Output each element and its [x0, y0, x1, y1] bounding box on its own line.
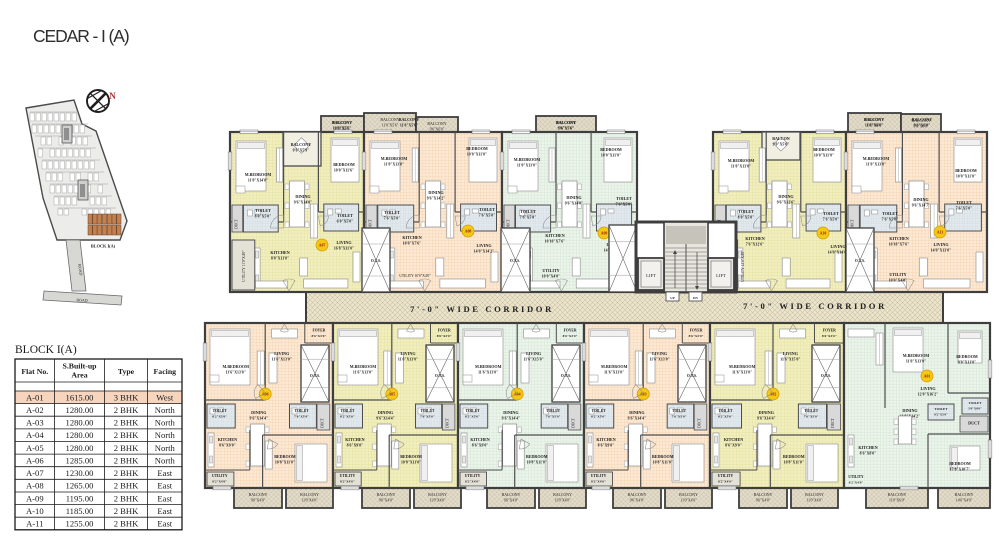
- svg-text:BLOCK I(A): BLOCK I(A): [15, 344, 77, 356]
- svg-text:North: North: [155, 418, 176, 428]
- svg-text:M.BEDROOM: M.BEDROOM: [475, 364, 502, 369]
- svg-text:9'6"X4'0": 9'6"X4'0": [379, 499, 394, 503]
- svg-text:2 BHK: 2 BHK: [114, 455, 139, 465]
- svg-text:O.T.S.: O.T.S.: [310, 374, 320, 378]
- svg-text:BALCONY: BALCONY: [380, 117, 399, 122]
- svg-text:10'8"X11'0": 10'8"X11'0": [784, 460, 804, 464]
- svg-text:M.BEDROOM: M.BEDROOM: [350, 364, 377, 369]
- svg-text:10'0"X11'0": 10'0"X11'0": [814, 153, 834, 157]
- svg-text:6'0"X5'0": 6'0"X5'0": [337, 219, 354, 223]
- svg-text:11'0"X5'6": 11'0"X5'6": [382, 123, 399, 127]
- svg-text:M.BEDROOM: M.BEDROOM: [903, 353, 930, 358]
- svg-text:10'0"X7'6": 10'0"X7'6": [403, 241, 422, 245]
- svg-text:10'8"X11'0": 10'8"X11'0": [653, 460, 673, 464]
- svg-text:LIVING: LIVING: [783, 351, 799, 356]
- svg-text:9'6"X12'6": 9'6"X12'6": [777, 200, 796, 204]
- svg-text:9'6"X14'4": 9'6"X14'4": [376, 416, 395, 420]
- svg-text:8'6"X8'0": 8'6"X8'0": [860, 451, 877, 455]
- svg-text:M.BEDROOM: M.BEDROOM: [245, 172, 272, 177]
- svg-text:1265.00: 1265.00: [66, 481, 94, 491]
- svg-text:8'6"X3'0": 8'6"X3'0": [689, 334, 704, 338]
- svg-text:7'6"X5'0": 7'6"X5'0": [672, 414, 687, 418]
- svg-text:O.T.S.: O.T.S.: [561, 374, 571, 378]
- svg-text:14'0"X13'0": 14'0"X13'0": [931, 248, 951, 252]
- svg-text:8'2"X4'0": 8'2"X4'0": [340, 479, 355, 483]
- svg-text:A-08: A-08: [26, 481, 44, 491]
- svg-text:7'6"X5'0": 7'6"X5'0": [956, 206, 973, 210]
- svg-text:TOILET: TOILET: [823, 211, 839, 216]
- svg-text:9'6"X14'4": 9'6"X14'4": [502, 416, 521, 420]
- svg-text:Facing: Facing: [154, 367, 177, 376]
- svg-text:11'0"X6'0": 11'0"X6'0": [889, 499, 906, 503]
- svg-text:LIVING: LIVING: [526, 351, 542, 356]
- svg-text:BALCONY: BALCONY: [628, 493, 647, 497]
- svg-text:UTILITY: UTILITY: [848, 475, 864, 479]
- svg-text:2 BHK: 2 BHK: [114, 481, 139, 491]
- svg-text:9'0"X5'0": 9'0"X5'0": [773, 142, 790, 146]
- svg-text:DINING: DINING: [902, 408, 918, 413]
- svg-text:8'6"X3'0": 8'6"X3'0": [822, 334, 837, 338]
- svg-text:DINING: DINING: [503, 410, 519, 415]
- svg-text:A-01: A-01: [26, 392, 44, 402]
- svg-text:8'2"X5'0": 8'2"X5'0": [718, 414, 733, 418]
- svg-text:KITCHEN: KITCHEN: [345, 437, 364, 442]
- svg-text:BALCONY: BALCONY: [888, 493, 907, 497]
- svg-text:10'0"X4'0": 10'0"X4'0": [889, 278, 908, 282]
- svg-text:FOYER: FOYER: [823, 329, 836, 333]
- svg-text:LIFT: LIFT: [716, 273, 726, 278]
- svg-text:TOILET: TOILET: [882, 211, 898, 216]
- svg-text:10'8"X11'0": 10'8"X11'0": [527, 460, 547, 464]
- svg-text:LIVING: LIVING: [933, 242, 949, 247]
- svg-text:BALCONY: BALCONY: [865, 117, 884, 122]
- svg-text:UTILITY 12'0"X4'0": UTILITY 12'0"X4'0": [741, 250, 745, 282]
- svg-text:1185.00: 1185.00: [66, 506, 94, 516]
- svg-text:11'6"X13'0": 11'6"X13'0": [478, 370, 498, 374]
- svg-text:DUCT: DUCT: [234, 218, 238, 229]
- svg-text:10'0"X5'6": 10'0"X5'6": [334, 126, 351, 130]
- svg-text:O.T.S.: O.T.S.: [510, 259, 520, 263]
- svg-text:7'6"X12'6": 7'6"X12'6": [746, 242, 765, 246]
- svg-text:10'10"X7'6": 10'10"X7'6": [889, 242, 909, 246]
- svg-text:8'0"X11'0": 8'0"X11'0": [271, 256, 289, 260]
- svg-text:7'6"X5'0": 7'6"X5'0": [294, 414, 309, 418]
- svg-text:BALCONY: BALCONY: [679, 493, 698, 497]
- svg-text:1230.00: 1230.00: [66, 468, 94, 478]
- svg-text:7'-0" WIDE CORRIDOR: 7'-0" WIDE CORRIDOR: [410, 304, 554, 314]
- svg-text:BALCONY: BALCONY: [553, 493, 572, 497]
- svg-text:A09: A09: [601, 232, 608, 236]
- svg-text:M.BEDROOM: M.BEDROOM: [381, 156, 408, 161]
- svg-text:17'8"X10'7": 17'8"X10'7": [950, 467, 970, 471]
- svg-text:10'0"X11'6": 10'0"X11'6": [334, 168, 354, 172]
- svg-text:10'10"X7'6": 10'10"X7'6": [545, 239, 565, 243]
- svg-text:East: East: [157, 519, 172, 529]
- svg-text:9'6"X5'6": 9'6"X5'6": [559, 126, 574, 130]
- svg-text:A-10: A-10: [26, 506, 44, 516]
- svg-text:KITCHEN: KITCHEN: [545, 233, 564, 238]
- svg-text:TOILET: TOILET: [255, 208, 271, 213]
- svg-text:2 BHK: 2 BHK: [114, 430, 139, 440]
- svg-text:7'6"X5'0": 7'6"X5'0": [420, 414, 435, 418]
- svg-text:LIVING: LIVING: [476, 243, 492, 248]
- svg-text:7'-0" WIDE CORRIDOR: 7'-0" WIDE CORRIDOR: [743, 301, 887, 311]
- svg-text:TOILET: TOILET: [546, 409, 561, 413]
- svg-text:1280.00: 1280.00: [66, 443, 94, 453]
- svg-text:11'6"X15'0": 11'6"X15'0": [523, 357, 543, 361]
- svg-text:BALCONY: BALCONY: [377, 493, 396, 497]
- svg-text:O.T.S.: O.T.S.: [687, 374, 697, 378]
- svg-text:KITCHEN: KITCHEN: [745, 236, 764, 241]
- svg-text:KITCHEN: KITCHEN: [270, 250, 289, 255]
- svg-text:O.T.S.: O.T.S.: [821, 374, 831, 378]
- svg-text:1280.00: 1280.00: [66, 430, 94, 440]
- svg-text:TOILET: TOILET: [935, 407, 949, 411]
- svg-text:BALCONY: BALCONY: [805, 493, 824, 497]
- svg-text:DINING: DINING: [428, 190, 444, 195]
- svg-text:East: East: [157, 481, 172, 491]
- svg-text:9'6"X4'0": 9'6"X4'0": [504, 499, 519, 503]
- svg-text:TOILET: TOILET: [465, 409, 480, 413]
- svg-text:8'2"X5'0": 8'2"X5'0": [212, 414, 227, 418]
- svg-text:West: West: [156, 392, 174, 402]
- svg-text:DINING: DINING: [378, 410, 394, 415]
- svg-text:8'2"X4'0": 8'2"X4'0": [718, 479, 733, 483]
- svg-text:10'8"X11'0": 10'8"X11'0": [275, 460, 295, 464]
- svg-text:Area: Area: [71, 371, 87, 380]
- svg-text:DUCT: DUCT: [320, 417, 324, 428]
- svg-text:KITCHEN: KITCHEN: [889, 236, 908, 241]
- svg-text:TOILET: TOILET: [337, 213, 353, 218]
- svg-text:11'0"X6'0": 11'0"X6'0": [866, 123, 883, 127]
- svg-text:8'2"X4'0": 8'2"X4'0": [591, 479, 606, 483]
- svg-text:LIVING: LIVING: [920, 386, 936, 391]
- svg-text:TOILET: TOILET: [520, 209, 536, 214]
- svg-text:TOILET: TOILET: [738, 209, 754, 214]
- svg-text:11'6"X13'0": 11'6"X13'0": [649, 357, 669, 361]
- svg-text:BALCON: BALCON: [772, 136, 790, 141]
- svg-text:8'6"X9'0": 8'6"X9'0": [347, 443, 364, 447]
- svg-text:BLOCK I(A): BLOCK I(A): [91, 244, 116, 249]
- svg-text:BEDROOM: BEDROOM: [400, 454, 422, 459]
- svg-text:DINING: DINING: [295, 194, 311, 199]
- svg-text:LIVING: LIVING: [336, 240, 352, 245]
- svg-text:8'2"X4'0": 8'2"X4'0": [212, 479, 227, 483]
- svg-text:A11: A11: [937, 231, 944, 235]
- svg-text:DUCT: DUCT: [968, 421, 980, 426]
- svg-text:FOYER: FOYER: [564, 329, 577, 333]
- svg-text:A07: A07: [319, 244, 326, 248]
- svg-text:UTILITY 10'0"X4'0": UTILITY 10'0"X4'0": [399, 274, 431, 278]
- svg-text:M.BEDROOM: M.BEDROOM: [514, 157, 541, 162]
- svg-text:Flat No.: Flat No.: [21, 367, 48, 376]
- svg-text:7'6"X5'0": 7'6"X5'0": [479, 213, 496, 217]
- svg-text:11'6"X15'0": 11'6"X15'0": [780, 357, 800, 361]
- svg-text:11'0"X5'6": 11'0"X5'6": [400, 123, 418, 127]
- svg-text:16'8"X11'0": 16'8"X11'0": [334, 246, 354, 250]
- svg-text:7'6"X5'0": 7'6"X5'0": [882, 217, 899, 221]
- svg-text:11'6"X13'0": 11'6"X13'0": [732, 370, 752, 374]
- svg-text:8'2"X5'0": 8'2"X5'0": [340, 414, 355, 418]
- svg-text:11'0"X4'0": 11'0"X4'0": [554, 499, 571, 503]
- svg-text:A-11: A-11: [26, 519, 43, 529]
- svg-text:10'8"X11'0": 10'8"X11'0": [401, 460, 421, 464]
- svg-text:8'2"X5'0": 8'2"X5'0": [591, 414, 606, 418]
- svg-text:DN: DN: [693, 296, 698, 300]
- svg-text:7'6"X5'0": 7'6"X5'0": [616, 202, 633, 206]
- svg-text:8'0"X5'0": 8'0"X5'0": [255, 214, 272, 218]
- svg-text:BALCONY: BALCONY: [955, 493, 974, 497]
- svg-text:BALCONY: BALCONY: [291, 142, 312, 147]
- svg-text:11'6"X13'0": 11'6"X13'0": [272, 357, 292, 361]
- svg-text:DINING: DINING: [913, 197, 929, 202]
- svg-text:KITCHEN: KITCHEN: [596, 437, 615, 442]
- svg-text:North: North: [155, 405, 176, 415]
- svg-text:North: North: [155, 455, 176, 465]
- svg-text:UTILITY: UTILITY: [340, 474, 356, 478]
- svg-text:1285.00: 1285.00: [66, 455, 94, 465]
- svg-text:TOILET: TOILET: [672, 409, 687, 413]
- svg-text:BALCONY: BALCONY: [399, 117, 420, 122]
- svg-text:DINING: DINING: [759, 410, 775, 415]
- svg-text:FOYER: FOYER: [438, 329, 451, 333]
- svg-text:11'0"X13'0": 11'0"X13'0": [866, 162, 886, 166]
- svg-text:DUCT: DUCT: [446, 417, 450, 428]
- svg-text:9'6"X14'4": 9'6"X14'4": [628, 416, 647, 420]
- svg-text:KITCHEN: KITCHEN: [858, 445, 877, 450]
- svg-text:North: North: [155, 430, 176, 440]
- svg-text:2 BHK: 2 BHK: [114, 493, 139, 503]
- svg-text:BALCONY: BALCONY: [428, 493, 447, 497]
- svg-text:DINING: DINING: [251, 410, 267, 415]
- svg-text:KITCHEN: KITCHEN: [724, 437, 743, 442]
- svg-text:5'0"X8'0": 5'0"X8'0": [968, 406, 982, 410]
- svg-text:O.T.S.: O.T.S.: [371, 259, 381, 263]
- svg-text:9'6"X6'0": 9'6"X6'0": [914, 124, 929, 128]
- svg-text:DUCT: DUCT: [572, 417, 576, 428]
- svg-text:TOILET: TOILET: [420, 409, 435, 413]
- svg-text:6'2"X4'0": 6'2"X4'0": [849, 480, 864, 484]
- svg-text:9'6"X4'0": 9'6"X4'0": [756, 499, 771, 503]
- svg-text:9'6"X6'0": 9'6"X6'0": [430, 127, 445, 131]
- svg-text:8'6"X9'0": 8'6"X9'0": [725, 443, 742, 447]
- svg-text:3 BHK: 3 BHK: [114, 392, 139, 402]
- svg-text:9'6"X14'0": 9'6"X14'0": [294, 200, 313, 204]
- svg-text:M.BEDROOM: M.BEDROOM: [601, 364, 628, 369]
- svg-text:10'0"X11'0": 10'0"X11'0": [601, 153, 621, 157]
- svg-text:9'6"X14'2": 9'6"X14'2": [427, 196, 446, 200]
- svg-text:BALCONY: BALCONY: [300, 493, 319, 497]
- svg-text:A10: A10: [820, 232, 827, 236]
- svg-text:TOILET: TOILET: [804, 409, 819, 413]
- svg-text:BALCONY: BALCONY: [249, 493, 268, 497]
- svg-text:11'0"X14'0": 11'0"X14'0": [248, 178, 268, 182]
- svg-text:2 BHK: 2 BHK: [114, 405, 139, 415]
- svg-text:8'6"X3'0": 8'6"X3'0": [437, 334, 452, 338]
- svg-text:8'6"X9'0": 8'6"X9'0": [219, 443, 236, 447]
- svg-text:DUCT: DUCT: [506, 218, 510, 229]
- svg-text:1255.00: 1255.00: [66, 519, 94, 529]
- svg-text:UTILITY: UTILITY: [889, 272, 906, 277]
- svg-text:8'2"X5'0": 8'2"X5'0": [934, 412, 948, 416]
- svg-text:East: East: [157, 506, 172, 516]
- svg-text:Type: Type: [118, 367, 135, 376]
- svg-text:7'6"X5'0": 7'6"X5'0": [823, 217, 840, 221]
- svg-text:9'6"X14'7": 9'6"X14'7": [912, 203, 931, 207]
- svg-text:UTILITY: UTILITY: [542, 268, 559, 273]
- svg-text:2 BHK: 2 BHK: [114, 468, 139, 478]
- svg-text:11'0"X13'0": 11'0"X13'0": [731, 164, 751, 168]
- svg-text:DUCT: DUCT: [851, 218, 855, 229]
- svg-text:1195.00: 1195.00: [66, 493, 94, 503]
- svg-text:11'6"X13'0": 11'6"X13'0": [353, 370, 373, 374]
- svg-text:O.T.S.: O.T.S.: [855, 259, 865, 263]
- svg-text:DUCT: DUCT: [698, 417, 702, 428]
- svg-text:2 BHK: 2 BHK: [114, 506, 139, 516]
- svg-text:DINING: DINING: [778, 194, 794, 199]
- svg-text:8'6"X9'0": 8'6"X9'0": [472, 443, 489, 447]
- svg-text:A-04: A-04: [26, 430, 44, 440]
- svg-text:FOYER: FOYER: [690, 329, 703, 333]
- svg-text:LIVING: LIVING: [400, 351, 416, 356]
- svg-text:2 BHK: 2 BHK: [114, 418, 139, 428]
- svg-text:KITCHEN: KITCHEN: [470, 437, 489, 442]
- svg-text:DUCT: DUCT: [369, 218, 373, 229]
- svg-text:11'6"X13'0": 11'6"X13'0": [604, 370, 624, 374]
- svg-text:14'0"X4'0": 14'0"X4'0": [956, 499, 973, 503]
- svg-text:2 BHK: 2 BHK: [114, 443, 139, 453]
- svg-text:O.T.S.: O.T.S.: [435, 374, 445, 378]
- svg-text:9'6"X4'0": 9'6"X4'0": [251, 499, 266, 503]
- svg-text:1615.00: 1615.00: [66, 392, 94, 402]
- svg-text:BEDROOM: BEDROOM: [955, 168, 977, 173]
- svg-text:10'0"X11'0": 10'0"X11'0": [467, 152, 487, 156]
- svg-text:14'0"X14'2": 14'0"X14'2": [474, 249, 494, 253]
- svg-text:UTILITY: UTILITY: [465, 474, 481, 478]
- svg-text:1280.00: 1280.00: [66, 405, 94, 415]
- svg-text:LIVING: LIVING: [274, 351, 290, 356]
- svg-text:TOILET: TOILET: [384, 210, 400, 215]
- svg-text:A-03: A-03: [26, 418, 44, 428]
- svg-text:11'0"X13'0": 11'0"X13'0": [384, 162, 404, 166]
- svg-text:A08: A08: [465, 230, 472, 234]
- svg-text:TOILET: TOILET: [479, 207, 495, 212]
- svg-text:BEDROOM: BEDROOM: [783, 454, 805, 459]
- svg-text:2 BHK: 2 BHK: [114, 519, 139, 529]
- svg-text:UTILITY: UTILITY: [591, 474, 607, 478]
- svg-text:LIVING: LIVING: [830, 244, 846, 249]
- svg-text:9'0"X11'0": 9'0"X11'0": [958, 360, 976, 364]
- svg-text:M.BEDROOM: M.BEDROOM: [222, 364, 249, 369]
- svg-text:A-02: A-02: [26, 405, 44, 415]
- svg-text:8'2"X5'0": 8'2"X5'0": [465, 414, 480, 418]
- svg-text:TOILET: TOILET: [295, 409, 310, 413]
- svg-text:11'6"X13'0": 11'6"X13'0": [398, 357, 418, 361]
- svg-text:M.BEDROOM: M.BEDROOM: [863, 156, 890, 161]
- svg-text:LIVING: LIVING: [652, 351, 668, 356]
- svg-text:BEDROOM: BEDROOM: [274, 454, 296, 459]
- svg-text:9'6"X4'0": 9'6"X4'0": [630, 499, 645, 503]
- svg-text:9'6"X5'9": 9'6"X5'9": [293, 148, 310, 152]
- svg-text:N: N: [109, 91, 116, 101]
- svg-text:BALCONY: BALCONY: [502, 493, 521, 497]
- svg-text:8'6"X3'0": 8'6"X3'0": [563, 334, 578, 338]
- svg-text:ROAD: ROAD: [76, 297, 88, 303]
- svg-text:BEDROOM: BEDROOM: [526, 454, 548, 459]
- svg-text:A-05: A-05: [26, 443, 44, 453]
- svg-text:7'6"X5'0": 7'6"X5'0": [384, 216, 401, 220]
- svg-text:8'6"X3'0": 8'6"X3'0": [311, 334, 326, 338]
- svg-text:TOILET: TOILET: [213, 409, 228, 413]
- svg-text:9'6"X14'4": 9'6"X14'4": [757, 416, 776, 420]
- svg-text:BALCONY: BALCONY: [556, 120, 575, 125]
- svg-text:BEDROOM: BEDROOM: [813, 147, 835, 152]
- svg-text:BEDROOM: BEDROOM: [333, 162, 355, 167]
- svg-text:TOILET: TOILET: [969, 401, 983, 405]
- svg-text:BALCONY: BALCONY: [333, 120, 352, 125]
- svg-text:KITCHEN: KITCHEN: [218, 437, 237, 442]
- svg-text:8'0"X5'0": 8'0"X5'0": [738, 215, 755, 219]
- svg-text:11'0"X4'0": 11'0"X4'0": [806, 499, 823, 503]
- svg-text:9'6"X14'0": 9'6"X14'0": [565, 201, 584, 205]
- svg-text:M.BEDROOM: M.BEDROOM: [729, 364, 756, 369]
- svg-text:A-09: A-09: [26, 493, 44, 503]
- svg-text:7'6"X5'0": 7'6"X5'0": [546, 414, 561, 418]
- svg-text:BEDROOM: BEDROOM: [466, 146, 488, 151]
- svg-text:TOILET: TOILET: [718, 409, 733, 413]
- svg-text:BEDROOM: BEDROOM: [949, 461, 971, 466]
- svg-text:LIFT: LIFT: [646, 273, 656, 278]
- svg-text:A01: A01: [924, 375, 931, 379]
- svg-text:BEDROOM: BEDROOM: [600, 147, 622, 152]
- svg-text:TOILET: TOILET: [616, 196, 632, 201]
- svg-text:DINING: DINING: [629, 410, 645, 415]
- svg-text:UP: UP: [670, 296, 674, 300]
- svg-text:TOILET: TOILET: [591, 409, 606, 413]
- svg-text:8'2"X4'0": 8'2"X4'0": [465, 479, 480, 483]
- svg-text:KITCHEN: KITCHEN: [402, 235, 421, 240]
- svg-text:DINING: DINING: [566, 195, 582, 200]
- svg-text:BALCONY: BALCONY: [427, 121, 446, 126]
- svg-text:TOILET: TOILET: [956, 200, 972, 205]
- svg-text:11'6"X13'0": 11'6"X13'0": [226, 370, 246, 374]
- svg-text:North: North: [155, 443, 176, 453]
- svg-text:CEDAR - I (A): CEDAR - I (A): [33, 26, 129, 46]
- svg-text:BALCONY: BALCONY: [911, 118, 930, 123]
- svg-text:UTILITY: UTILITY: [212, 474, 228, 478]
- svg-text:11'0"X4'0": 11'0"X4'0": [301, 499, 318, 503]
- svg-text:A-06: A-06: [26, 455, 44, 465]
- svg-text:12'0"X16'2": 12'0"X16'2": [918, 392, 938, 396]
- svg-text:14'0"X14'0": 14'0"X14'0": [828, 250, 848, 254]
- svg-text:11'0"X13'0": 11'0"X13'0": [906, 359, 926, 363]
- svg-text:9'6"X14'4": 9'6"X14'4": [250, 416, 269, 420]
- svg-text:BEDROOM: BEDROOM: [652, 454, 674, 459]
- svg-text:10'0"X4'0": 10'0"X4'0": [542, 274, 561, 278]
- svg-text:7'6"X5'0": 7'6"X5'0": [520, 215, 537, 219]
- svg-text:8'6"X9'0": 8'6"X9'0": [598, 443, 615, 447]
- svg-text:S.Built-up: S.Built-up: [62, 362, 97, 371]
- svg-text:DUCT: DUCT: [831, 417, 835, 428]
- svg-text:UTILITY: UTILITY: [718, 474, 734, 478]
- svg-text:11'0"X13'0": 11'0"X13'0": [517, 163, 537, 167]
- svg-text:11'0"X4'0": 11'0"X4'0": [680, 499, 697, 503]
- svg-text:East: East: [157, 468, 172, 478]
- svg-text:BALCONY: BALCONY: [754, 493, 773, 497]
- svg-text:7'6"X5'0": 7'6"X5'0": [804, 414, 819, 418]
- svg-text:FOYER: FOYER: [312, 329, 325, 333]
- svg-text:1280.00: 1280.00: [66, 418, 94, 428]
